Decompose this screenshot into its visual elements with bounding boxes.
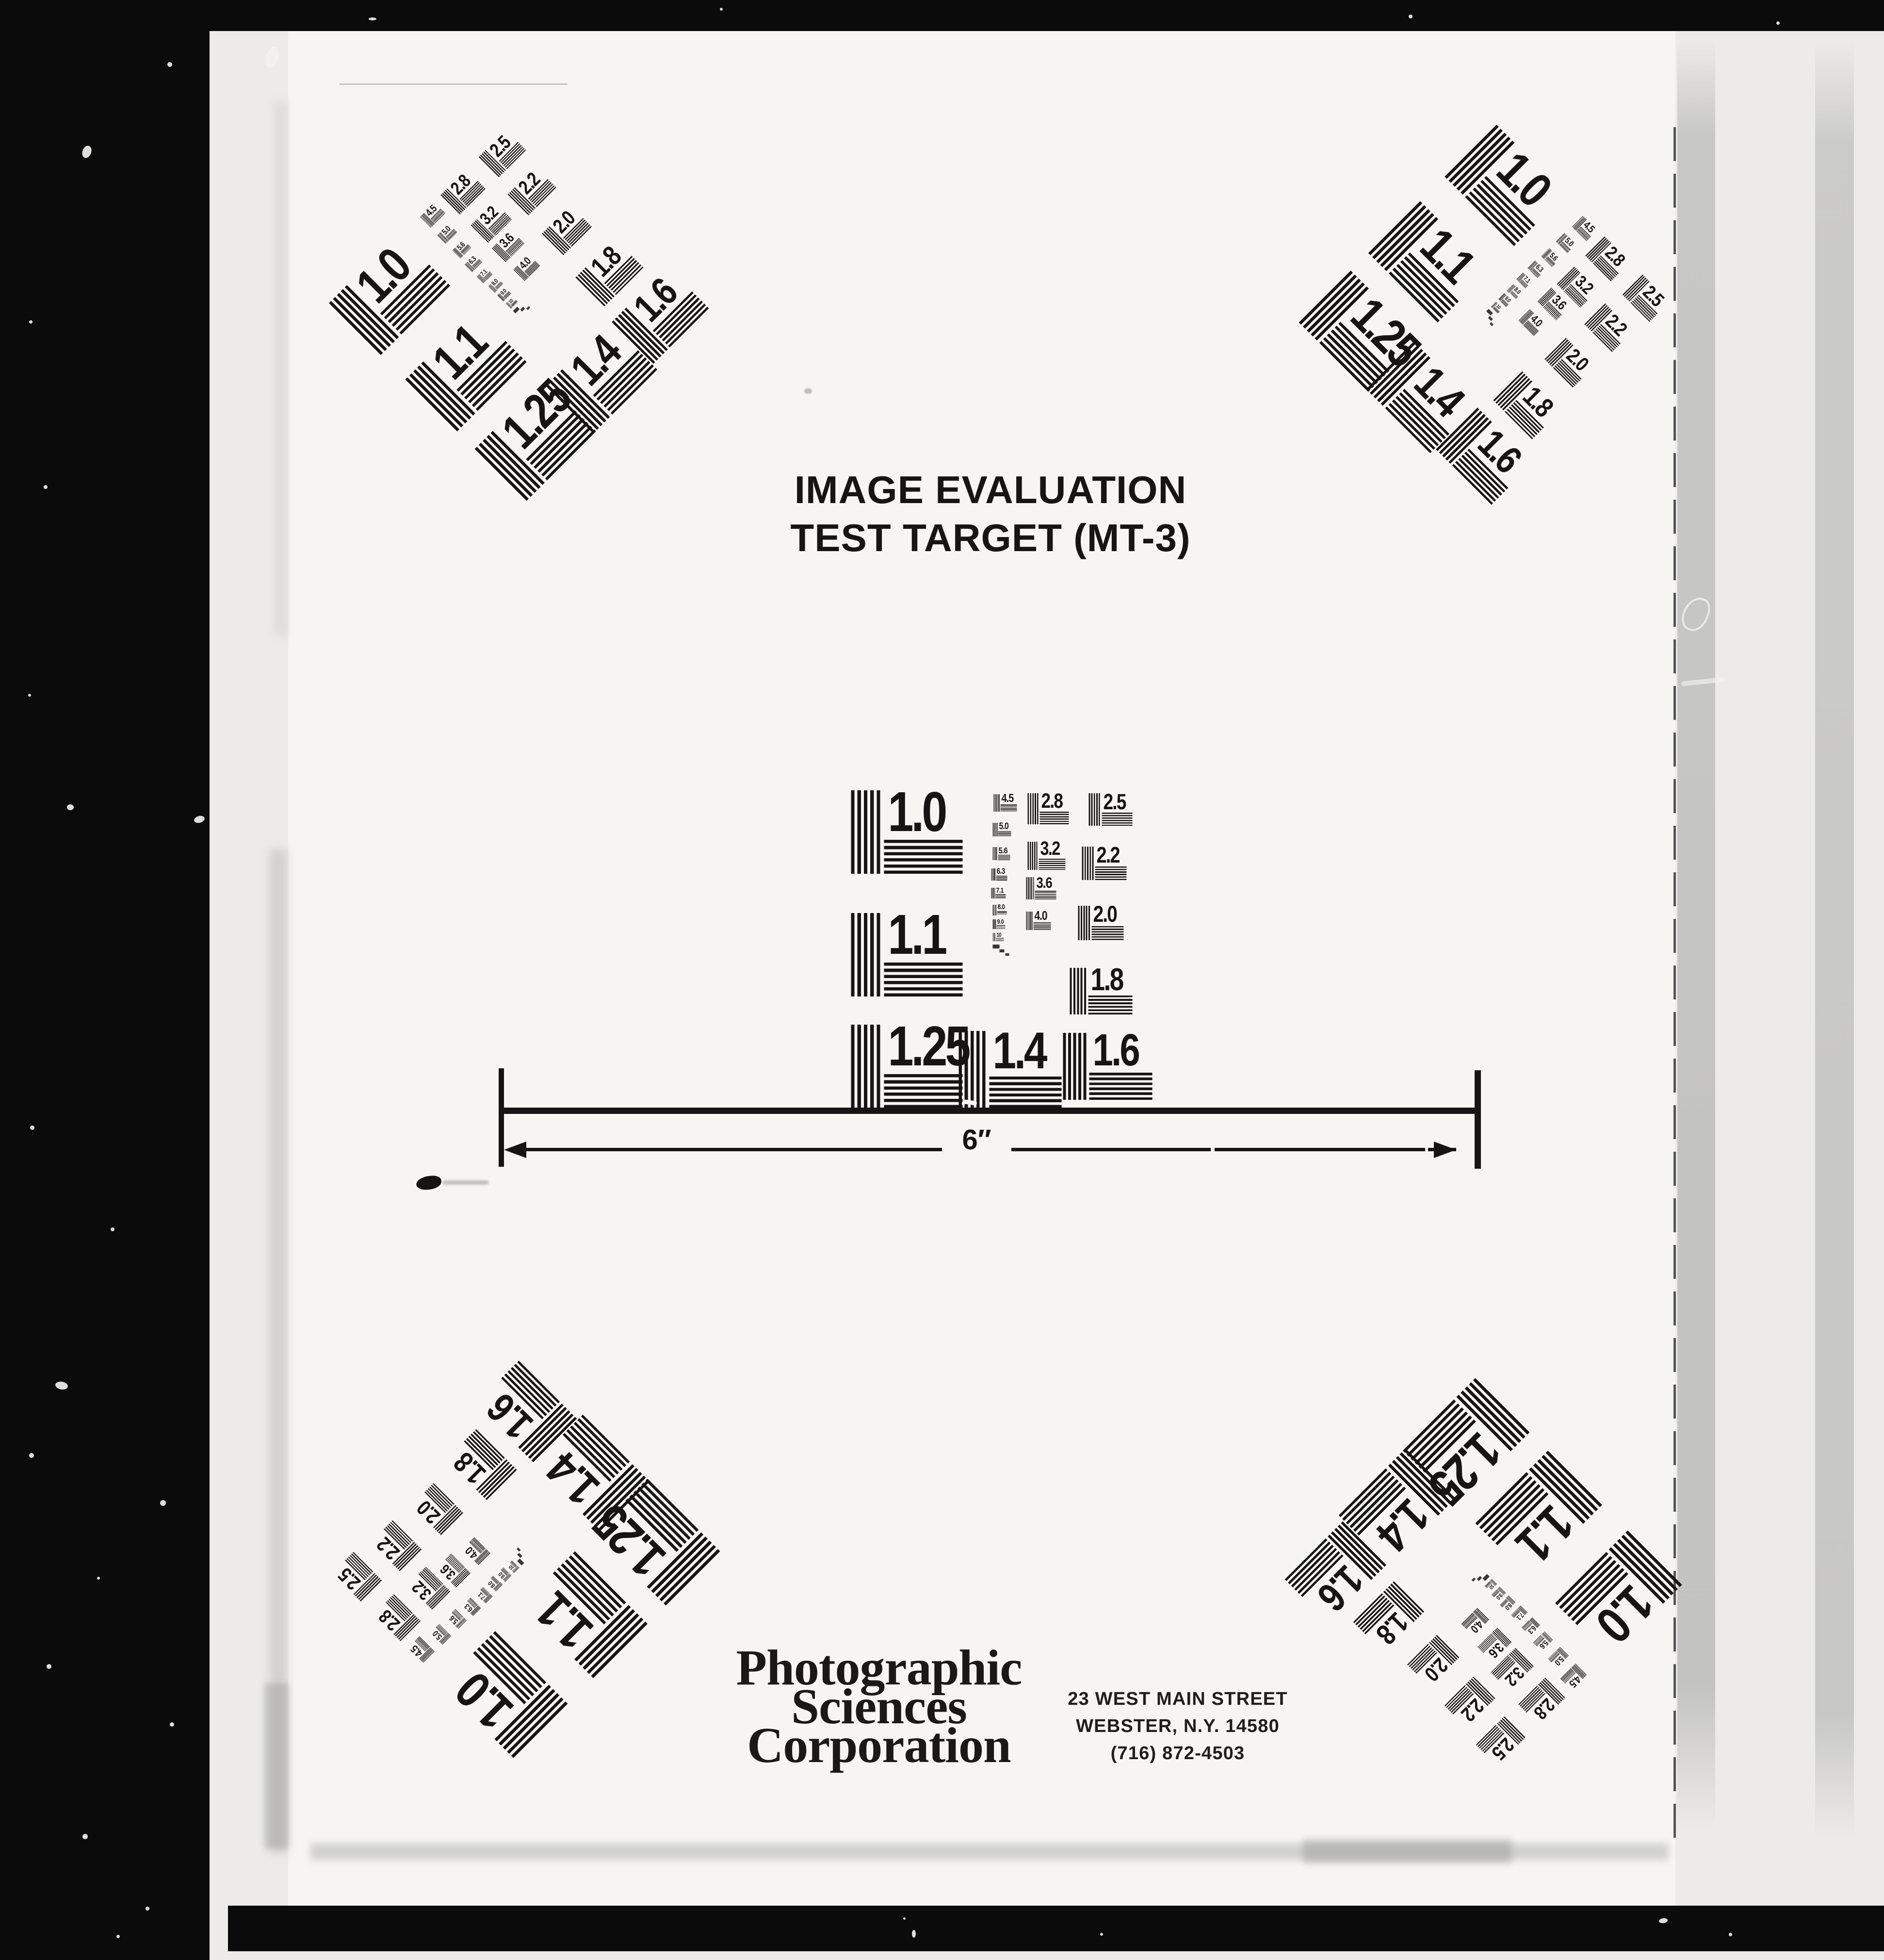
scale-line-break	[1211, 1147, 1215, 1152]
resolution-block: 5.0	[1556, 233, 1576, 253]
film-speck	[720, 8, 723, 11]
vertical-bars	[993, 823, 998, 836]
resolution-value: 2.0	[1093, 903, 1117, 926]
resolution-value: 10	[996, 932, 1001, 938]
film-edge-left	[0, 0, 210, 1960]
vertical-bars	[1063, 1033, 1087, 1100]
scale-end-bar-right	[1475, 1070, 1481, 1169]
ink-smear	[442, 1180, 489, 1185]
resolution-block: 4.0	[1462, 1608, 1490, 1636]
resolution-value: 3.2	[1040, 839, 1059, 858]
resolution-block: 2.8	[1028, 793, 1069, 824]
resolution-value: 3.6	[1036, 875, 1052, 890]
film-speck	[146, 1907, 149, 1911]
vertical-bars	[993, 905, 997, 915]
degraded-mark	[520, 307, 525, 311]
resolution-block: 1.6	[1063, 1033, 1153, 1100]
resolution-block: 2.0	[1078, 906, 1124, 940]
film-speck	[263, 45, 281, 69]
film-speck	[44, 485, 48, 489]
resolution-block: 4.0	[1026, 912, 1051, 930]
film-speck	[170, 1722, 174, 1727]
resolution-block: 2.0	[1544, 338, 1594, 388]
horizontal-bars	[995, 894, 1006, 898]
resolution-value: 1.8	[1090, 964, 1122, 996]
backing-gray-strip	[1815, 39, 1854, 1839]
company-imprint: Photographic Sciences Corporation	[636, 1649, 1121, 1765]
resolution-value: 1.25	[888, 1018, 969, 1074]
vertical-bars	[991, 888, 995, 898]
vertical-bars	[1078, 906, 1090, 940]
resolution-block: 5.0	[437, 224, 457, 244]
film-edge-bottom	[228, 1906, 1884, 1951]
horizontal-bars	[1088, 996, 1133, 1014]
resolution-block: 7.1	[991, 888, 1006, 898]
resolution-block: 1.8	[1070, 968, 1133, 1014]
vertical-bars	[993, 847, 997, 860]
resolution-block: 1.25	[851, 1025, 963, 1108]
resolution-value: 4.5	[1001, 793, 1013, 804]
horizontal-bars	[1089, 1073, 1153, 1100]
degraded-mark	[1477, 1576, 1482, 1581]
resolution-block: 5.6	[1533, 1632, 1553, 1651]
resolution-block: 3.6	[1026, 877, 1056, 899]
address-line-1: 23 WEST MAIN STREET	[1056, 1685, 1299, 1713]
film-speck	[167, 62, 172, 67]
film-speck	[82, 1834, 88, 1839]
scale-arrowhead-right	[1434, 1142, 1456, 1158]
film-speck	[912, 1930, 916, 1938]
vertical-bars	[994, 794, 1000, 812]
scale-line-break	[1425, 1147, 1428, 1152]
resolution-block: 1.0	[851, 790, 963, 874]
film-speck	[160, 1500, 166, 1506]
resolution-value: 1.6	[1092, 1028, 1138, 1073]
vertical-bars	[851, 790, 880, 874]
resolution-block: 7.1	[1516, 273, 1532, 289]
resolution-block: 7.1	[1511, 1605, 1527, 1622]
horizontal-bars	[1035, 891, 1056, 900]
degraded-mark	[517, 1553, 522, 1558]
scale-arrow-line-right	[1011, 1148, 1456, 1151]
resolution-block: 1.4	[959, 1031, 1062, 1108]
horizontal-bars	[996, 925, 1006, 929]
film-speck	[1776, 21, 1780, 25]
resolution-block: 6.3	[462, 1598, 481, 1616]
degraded-mark	[1486, 309, 1493, 316]
horizontal-bars	[996, 938, 1004, 941]
horizontal-bars	[1102, 813, 1132, 826]
page-left-edge-shadow	[275, 102, 287, 636]
vertical-bars	[1028, 793, 1039, 824]
vertical-bars	[1082, 847, 1094, 880]
film-speck	[67, 804, 74, 810]
scale-end-bar-left	[499, 1068, 504, 1167]
horizontal-bars	[997, 911, 1007, 915]
resolution-value: 6.3	[997, 867, 1005, 876]
film-speck	[116, 1935, 120, 1938]
target-title: IMAGE EVALUATION TEST TARGET (MT-3)	[748, 466, 1233, 562]
vertical-bars	[1026, 912, 1033, 930]
resolution-value: 1.0	[888, 784, 945, 840]
degraded-mark	[1472, 1578, 1476, 1582]
company-address: 23 WEST MAIN STREET WEBSTER, N.Y. 14580 …	[1056, 1685, 1299, 1767]
resolution-block: 2.0	[411, 1483, 463, 1535]
resolution-value: 4.0	[1034, 910, 1047, 923]
title-line-2: TEST TARGET (MT-3)	[748, 514, 1233, 562]
page-bottom-smudge	[1303, 1840, 1511, 1863]
film-edge-top	[210, 0, 1884, 31]
scratch-mark	[1681, 677, 1725, 686]
resolution-block: 6.3	[1522, 1617, 1540, 1636]
resolution-value: 8.0	[997, 904, 1005, 911]
degraded-mark	[517, 1548, 520, 1552]
horizontal-bars	[998, 831, 1011, 837]
film-speck	[47, 1664, 51, 1669]
resolution-value: 7.1	[996, 887, 1003, 894]
address-line-2: WEBSTER, N.Y. 14580	[1056, 1713, 1299, 1740]
scale-thick-line	[504, 1108, 1475, 1114]
resolution-block: 2.0	[542, 205, 592, 255]
vertical-bars	[1070, 968, 1087, 1014]
resolution-block: 2.5	[1089, 793, 1133, 826]
film-speck	[29, 320, 32, 324]
resolution-block: 2.0	[1407, 1635, 1459, 1687]
resolution-value: 5.0	[999, 822, 1008, 831]
horizontal-bars	[1033, 922, 1051, 930]
resolution-block: 6.3	[465, 254, 482, 272]
horizontal-bars	[998, 855, 1010, 860]
test-pattern-center: 1.01.11.251.41.61.82.02.22.52.83.23.64.0…	[851, 790, 1130, 1116]
film-speck	[97, 1577, 100, 1580]
vertical-bars	[991, 868, 996, 881]
resolution-value: 5.6	[998, 846, 1007, 855]
resolution-value: 2.2	[1097, 844, 1120, 866]
vertical-bars	[1028, 842, 1038, 870]
resolution-value: 1.1	[888, 906, 945, 963]
resolution-block: 5.0	[1548, 1647, 1569, 1667]
horizontal-bars	[1091, 926, 1123, 940]
horizontal-bars	[1040, 812, 1069, 824]
horizontal-bars	[989, 1077, 1061, 1108]
degraded-mark	[517, 1558, 524, 1565]
degraded-mark	[1000, 949, 1005, 952]
vertical-bars	[1026, 877, 1034, 899]
page-top-edge-line	[340, 83, 568, 85]
scale-arrowhead-left	[504, 1142, 526, 1158]
resolution-block: 6.3	[1527, 261, 1545, 278]
degraded-mark	[993, 945, 1000, 948]
resolution-block: 10	[1491, 302, 1503, 314]
resolution-block: 4.5	[994, 794, 1017, 812]
horizontal-bars	[1001, 804, 1017, 812]
degraded-mark	[1490, 322, 1494, 326]
resolution-block: 5.0	[430, 1624, 451, 1645]
horizontal-bars	[996, 876, 1007, 881]
resolution-block: 5.0	[993, 823, 1011, 836]
horizontal-bars	[1095, 866, 1127, 880]
vertical-bars	[851, 1025, 880, 1108]
title-line-1: IMAGE EVALUATION	[748, 466, 1233, 514]
resolution-block: 7.1	[477, 267, 493, 283]
resolution-block: 4.0	[1519, 309, 1545, 336]
vertical-bars	[993, 919, 996, 929]
degraded-mark	[1482, 1574, 1489, 1581]
vertical-bars	[993, 933, 996, 941]
degraded-mark	[1488, 316, 1493, 321]
scale-length-label: 6″	[942, 1124, 1011, 1156]
resolution-block: 5.6	[993, 847, 1010, 860]
vertical-bars	[851, 913, 880, 996]
film-speck	[30, 1126, 34, 1130]
film-speck	[111, 1227, 114, 1231]
film-speck	[903, 1917, 906, 1920]
resolution-block: 10	[1484, 1579, 1497, 1591]
resolution-value: 2.5	[1103, 791, 1125, 813]
vertical-bars	[959, 1031, 986, 1108]
company-line-3: Corporation	[636, 1726, 1121, 1765]
resolution-value: 2.8	[1041, 791, 1063, 812]
horizontal-bars	[884, 840, 963, 874]
horizontal-bars	[1039, 859, 1066, 870]
horizontal-bars	[884, 1074, 963, 1108]
resolution-value: 1.4	[992, 1025, 1045, 1077]
resolution-block: 5.6	[1541, 248, 1560, 267]
resolution-block: 4.0	[513, 254, 540, 281]
microfilm-test-target-scan: 1.01.11.251.41.61.82.02.22.52.83.23.64.0…	[0, 0, 1884, 1960]
horizontal-bars	[884, 963, 963, 996]
address-line-3: (716) 872-4503	[1056, 1740, 1299, 1767]
film-speck	[1100, 1933, 1103, 1936]
degraded-mark	[526, 306, 530, 310]
degraded-mark	[513, 307, 520, 313]
resolution-block: 5.6	[447, 1609, 467, 1629]
resolution-block: 1.1	[851, 913, 963, 996]
resolution-block: 8.0	[993, 905, 1007, 915]
page-corner-shadow	[264, 1683, 289, 1848]
resolution-block: 9.0	[993, 919, 1006, 929]
resolution-block: 4.0	[462, 1537, 490, 1566]
resolution-value: 9.0	[997, 918, 1004, 925]
resolution-block: 3.2	[1028, 842, 1066, 870]
scale-arrow-line-left	[524, 1148, 942, 1151]
film-speck	[28, 694, 31, 697]
film-speck	[1409, 15, 1413, 18]
film-speck	[369, 17, 376, 20]
scratch-mark	[1678, 593, 1713, 635]
resolution-block: 7.1	[476, 1587, 493, 1603]
resolution-block: 5.6	[453, 240, 471, 259]
degraded-mark	[1006, 953, 1009, 956]
resolution-block: 6.3	[991, 868, 1007, 881]
resolution-block: 10	[993, 933, 1004, 941]
film-speck	[1729, 1933, 1732, 1936]
film-speck	[29, 1453, 34, 1458]
resolution-block: 2.2	[1082, 847, 1127, 880]
page-speck	[804, 388, 812, 394]
resolution-block: 10	[507, 1560, 520, 1573]
vertical-bars	[1089, 793, 1100, 826]
backing-gray-strip	[1677, 39, 1715, 1829]
